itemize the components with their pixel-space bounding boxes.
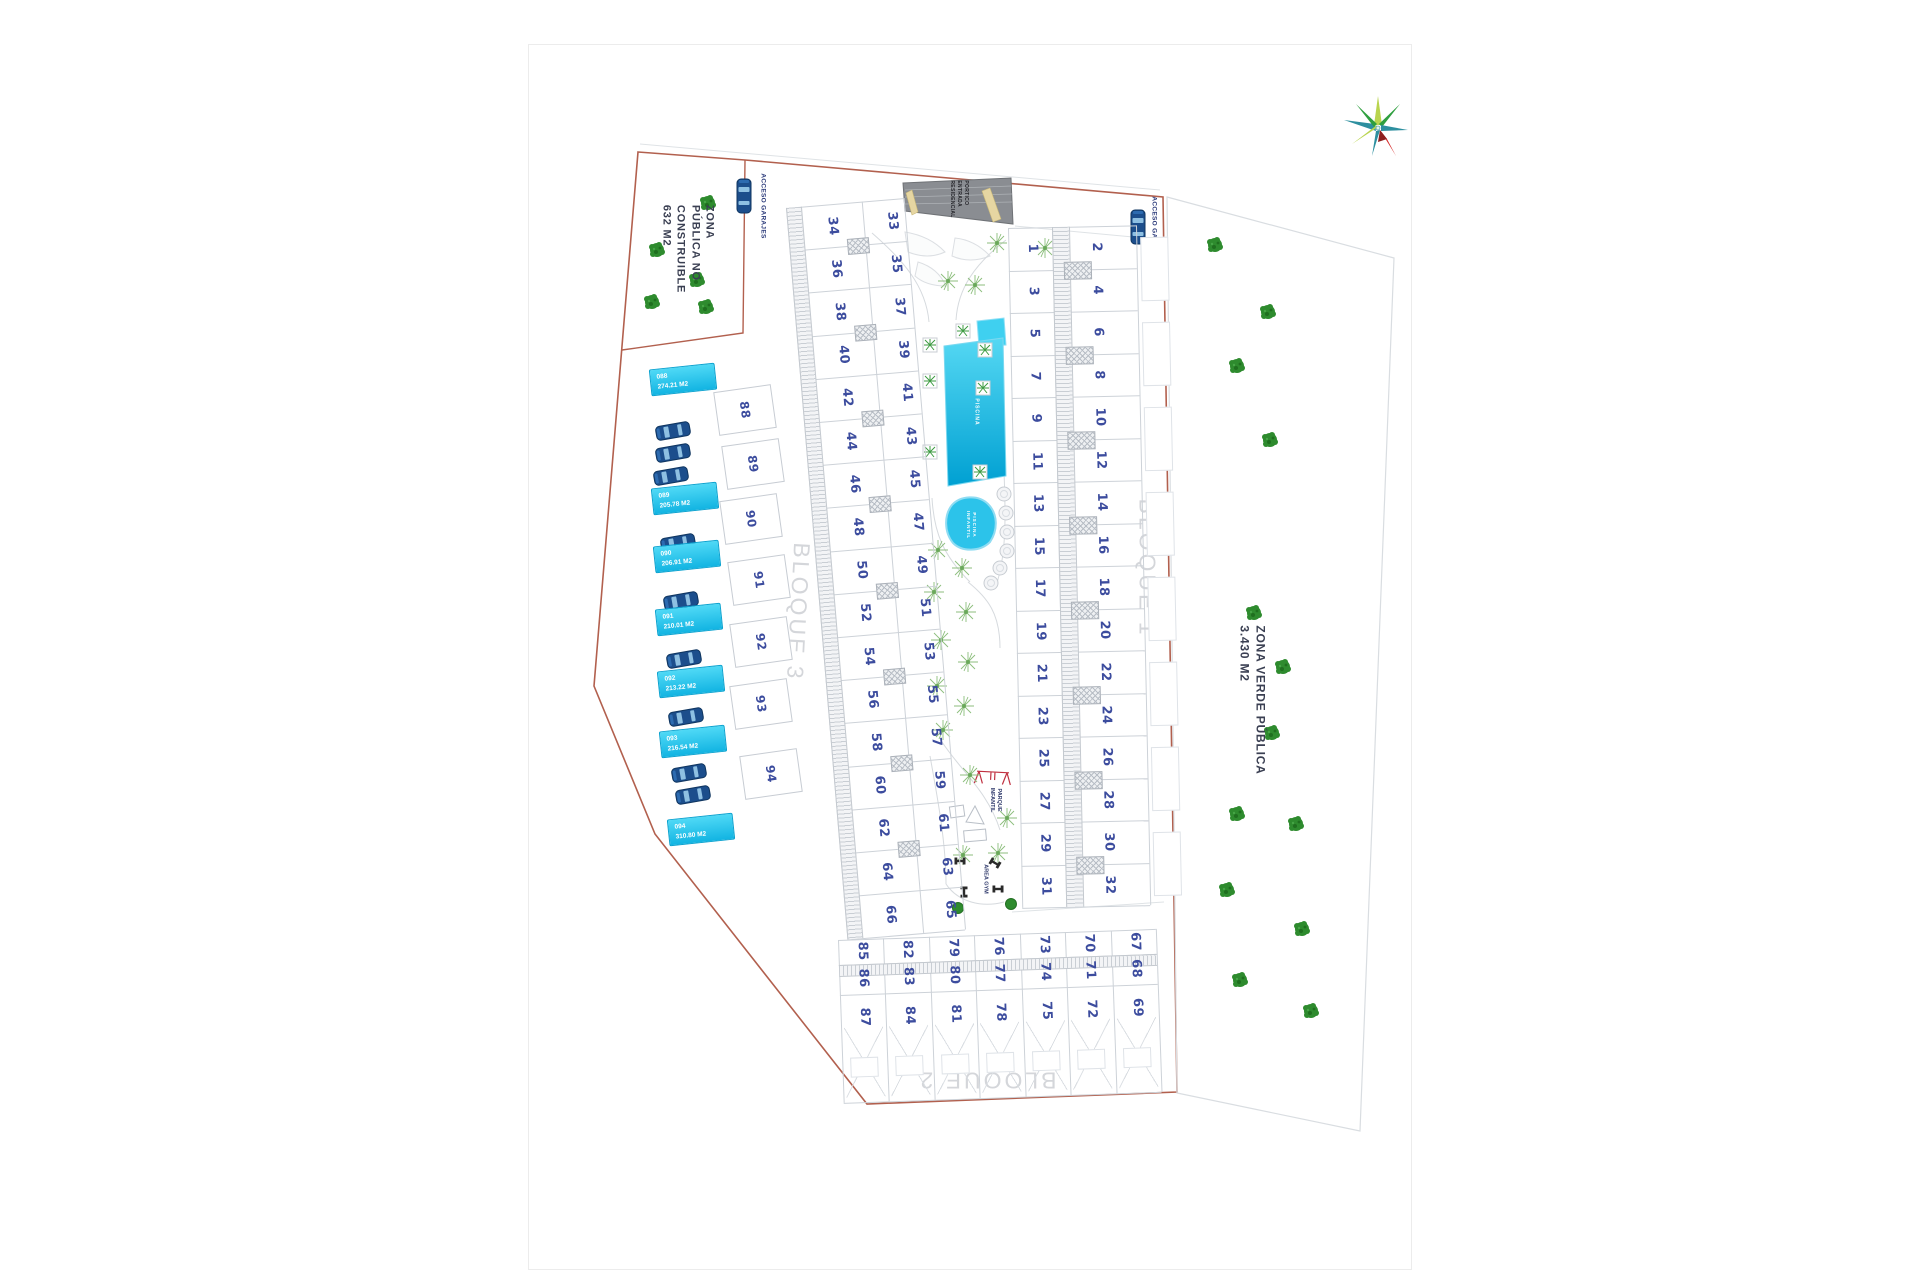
plot-number-39: 39 [895, 340, 912, 360]
palm-planter-icon [976, 381, 990, 395]
plot-number-87: 87 [857, 1007, 873, 1027]
paving-circle [997, 487, 1011, 501]
car-icon [653, 466, 689, 486]
plot-number-54: 54 [861, 646, 878, 666]
villa-88: 88 [713, 384, 777, 436]
plot-number-20: 20 [1097, 620, 1112, 639]
plot-number-24: 24 [1099, 705, 1114, 724]
gym-area-label: AREA GYM [981, 864, 988, 893]
garage-box [1077, 1049, 1106, 1070]
terrace-box [1140, 237, 1169, 302]
plot-number-79: 79 [945, 938, 961, 958]
plot-number-40: 40 [835, 345, 852, 365]
garage-hatch [854, 323, 877, 341]
garden-tree-icon [987, 233, 1007, 253]
garage-box [1123, 1047, 1152, 1068]
plot-number-77: 77 [992, 964, 1008, 984]
tree-icon [1229, 806, 1245, 821]
zone-left-label: ZONA PÚBLICA NO CONSTRUIBLE 632 M2 [659, 205, 716, 293]
block-1: 1357911131517192123252729312468101214161… [1008, 225, 1182, 908]
terrace-box [1142, 322, 1171, 387]
plot-number-28: 28 [1100, 790, 1115, 809]
main-pool-label: PISCINA [973, 398, 980, 425]
plot-number-83: 83 [901, 967, 917, 987]
plot-number-31: 31 [1038, 876, 1053, 895]
playground-label: PARQUE INFANTIL [988, 788, 1002, 813]
plot-number-63: 63 [938, 856, 955, 876]
plot-line [815, 543, 933, 554]
palm-planter-icon [923, 374, 937, 388]
plot-line [822, 629, 940, 640]
garage-hatch [897, 840, 920, 858]
plot-number-42: 42 [839, 388, 856, 408]
plot-number-94: 94 [763, 764, 779, 783]
plot-number-61: 61 [935, 813, 952, 833]
plot-number-68: 68 [1128, 959, 1144, 979]
plot-number-3: 3 [1026, 286, 1041, 296]
car-icon [671, 763, 707, 783]
compass-rose-icon [1344, 96, 1408, 156]
plot-number-27: 27 [1036, 791, 1051, 810]
plot-number-43: 43 [902, 426, 919, 446]
plot-number-48: 48 [850, 517, 867, 537]
tree-icon [698, 299, 714, 314]
plot-number-12: 12 [1093, 450, 1108, 469]
tree-icon [1246, 605, 1262, 620]
swing-icon [974, 771, 1011, 785]
paving-circle [993, 561, 1007, 575]
plot-number-37: 37 [891, 297, 908, 317]
plot-line [1019, 735, 1147, 739]
garage-box [1032, 1050, 1061, 1071]
plot-number-81: 81 [948, 1004, 964, 1024]
plot-number-49: 49 [913, 555, 930, 575]
garden-tree-icon [954, 696, 974, 716]
plot-number-6: 6 [1091, 327, 1106, 337]
plot-number-73: 73 [1036, 935, 1052, 955]
kids-pool-label: PISCINA INFANTIL [965, 511, 977, 539]
car-icon [668, 707, 704, 727]
plot-line [840, 984, 1158, 996]
bush-icon [1006, 899, 1017, 910]
tree-icon [1303, 1003, 1319, 1018]
plot-number-32: 32 [1102, 875, 1117, 894]
plot-number-70: 70 [1082, 933, 1098, 953]
palm-planter-icon [956, 324, 970, 338]
plot-number-45: 45 [906, 469, 923, 489]
plot-number-76: 76 [991, 937, 1007, 957]
garden-petals [905, 232, 990, 286]
plot-number-78: 78 [993, 1003, 1009, 1023]
plot-number-88: 88 [737, 400, 753, 419]
garage-hatch [1069, 516, 1097, 535]
villa-93: 93 [729, 678, 793, 730]
block-2: 8586878283847980817677787374757071726768… [838, 929, 1162, 1105]
plot-line [808, 456, 926, 467]
plot-number-17: 17 [1032, 579, 1047, 598]
plot-line [837, 801, 955, 812]
car-icon [737, 179, 751, 213]
paving-circle [984, 576, 998, 590]
garage-hatch [890, 754, 913, 772]
plot-number-8: 8 [1091, 370, 1106, 380]
plot-number-90: 90 [743, 509, 759, 528]
tree-icon [644, 294, 660, 309]
palm-planter-icon [978, 343, 992, 357]
tree-icon [1275, 659, 1291, 674]
plot-number-34: 34 [824, 216, 841, 236]
plot-number-53: 53 [920, 641, 937, 661]
plot-number-86: 86 [856, 968, 872, 988]
plot-number-21: 21 [1034, 664, 1049, 683]
plot-number-38: 38 [832, 302, 849, 322]
garden-tree-icon [965, 275, 985, 295]
plot-number-57: 57 [928, 727, 945, 747]
plot-number-18: 18 [1096, 578, 1111, 597]
garage-hatch [1076, 856, 1104, 875]
plot-number-41: 41 [899, 383, 916, 403]
plot-number-52: 52 [857, 603, 874, 623]
garage-hatch [1073, 686, 1101, 705]
plot-number-10: 10 [1092, 408, 1107, 427]
tree-icon [1260, 304, 1276, 319]
plot-number-22: 22 [1098, 663, 1113, 682]
garden-tree-icon [952, 558, 972, 578]
plot-number-4: 4 [1090, 285, 1105, 295]
gym-equipment-icon [993, 886, 1003, 892]
garage-box [941, 1054, 970, 1075]
plot-line [844, 887, 962, 898]
villa-91: 91 [727, 554, 791, 606]
garage-hatch [869, 496, 892, 514]
plot-line [1020, 820, 1148, 824]
plot-number-35: 35 [888, 254, 905, 274]
plot-number-14: 14 [1094, 493, 1109, 512]
plot-number-89: 89 [745, 454, 761, 473]
plot-number-15: 15 [1031, 536, 1046, 555]
garage-hatch [1067, 431, 1095, 450]
plot-number-19: 19 [1033, 621, 1048, 640]
garden-tree-icon [938, 271, 958, 291]
garage-hatch [1071, 601, 1099, 620]
car-icon [655, 443, 691, 463]
plot-number-66: 66 [882, 904, 899, 924]
plot-number-62: 62 [875, 818, 892, 838]
plot-number-59: 59 [931, 770, 948, 790]
paving-circle [999, 506, 1013, 520]
plot-number-85: 85 [855, 941, 871, 961]
plot-number-60: 60 [871, 775, 888, 795]
plot-number-7: 7 [1028, 371, 1043, 381]
plot-number-75: 75 [1038, 1001, 1054, 1021]
plot-number-69: 69 [1129, 998, 1145, 1018]
plot-line [1017, 650, 1145, 654]
plot-line [1010, 310, 1138, 314]
plot-line [1012, 395, 1140, 399]
palm-planter-icon [923, 338, 937, 352]
paving-circle [1000, 525, 1014, 539]
villa-90: 90 [719, 493, 783, 545]
garden-tree-icon [960, 765, 980, 785]
plot-number-74: 74 [1037, 962, 1053, 982]
entrance-label: PORTICO ENTRADA RESIDENCIAL [949, 180, 969, 217]
garage-hatch [883, 668, 906, 686]
plot-number-84: 84 [902, 1006, 918, 1026]
villa-94: 94 [739, 748, 803, 800]
site-plan-screenshot: ZONA PÚBLICA NO CONSTRUIBLE 632 M2 ZONA … [0, 0, 1920, 1280]
car-icon [666, 649, 702, 669]
zone-right-label: ZONA VERDE PÚBLICA 3.430 M2 [1236, 625, 1267, 774]
plot-number-2: 2 [1089, 242, 1104, 252]
garage-box [850, 1057, 879, 1078]
plot-number-9: 9 [1028, 414, 1043, 424]
garage-hatch [1065, 346, 1093, 365]
terrace-box [1146, 492, 1175, 557]
plot-number-13: 13 [1030, 494, 1045, 513]
plot-number-80: 80 [946, 965, 962, 985]
plot-line [800, 370, 918, 381]
plot-number-26: 26 [1099, 748, 1114, 767]
tree-icon [1232, 972, 1248, 987]
plot-number-72: 72 [1084, 999, 1100, 1019]
garage-hatch [876, 582, 899, 600]
terrace-box [1153, 832, 1182, 897]
garage-box [896, 1055, 925, 1076]
plot-number-46: 46 [846, 474, 863, 494]
terrace-box [1147, 577, 1176, 642]
garden-tree-icon [956, 602, 976, 622]
plot-number-30: 30 [1101, 833, 1116, 852]
plot-number-25: 25 [1035, 749, 1050, 768]
plot-number-67: 67 [1127, 932, 1143, 952]
tree-icon [1207, 237, 1223, 252]
plot-line [1015, 565, 1143, 569]
tree-icon [1288, 816, 1304, 831]
plot-number-92: 92 [753, 632, 769, 651]
plot-number-55: 55 [924, 684, 941, 704]
plot-number-29: 29 [1037, 834, 1052, 853]
plot-number-33: 33 [884, 211, 901, 231]
tree-icon [1219, 882, 1235, 897]
plot-number-5: 5 [1027, 329, 1042, 339]
plot-line [1013, 480, 1141, 484]
car-icon [655, 421, 691, 441]
tree-icon [1294, 921, 1310, 936]
plot-number-93: 93 [753, 694, 769, 713]
plot-number-16: 16 [1095, 535, 1110, 554]
plot-number-1: 1 [1025, 244, 1040, 254]
plot-number-11: 11 [1029, 451, 1044, 470]
plot-number-82: 82 [900, 940, 916, 960]
plot-number-50: 50 [853, 560, 870, 580]
plot-number-47: 47 [909, 512, 926, 532]
tree-icon [1229, 358, 1245, 373]
plot-line [793, 284, 911, 295]
palm-planter-icon [973, 465, 987, 479]
plot-number-36: 36 [828, 259, 845, 279]
villa-92: 92 [729, 616, 793, 668]
plot-number-91: 91 [751, 570, 767, 589]
garage-hatch [861, 410, 884, 428]
tree-icon [1262, 432, 1278, 447]
garage-hatch [1074, 771, 1102, 790]
terrace-box [1149, 662, 1178, 727]
terrace-box [1144, 407, 1173, 472]
plot-number-23: 23 [1035, 706, 1050, 725]
garage-hatch [1064, 261, 1092, 280]
terrace-box [1151, 747, 1180, 812]
plot-number-44: 44 [842, 431, 859, 451]
plot-number-56: 56 [864, 689, 881, 709]
plot-line [829, 715, 947, 726]
villa-89: 89 [721, 438, 785, 490]
plot-number-65: 65 [942, 899, 959, 919]
car-icon [675, 785, 711, 805]
plot-number-64: 64 [879, 861, 896, 881]
garden-tree-icon [958, 652, 978, 672]
garage-box [986, 1052, 1015, 1073]
paving-circle [1000, 544, 1014, 558]
plot-number-51: 51 [917, 598, 934, 618]
garage-hatch [847, 237, 870, 255]
acceso-garajes-left-label: ACCESO GARAJES [760, 173, 767, 238]
plot-number-58: 58 [868, 732, 885, 752]
plot-number-71: 71 [1083, 960, 1099, 980]
